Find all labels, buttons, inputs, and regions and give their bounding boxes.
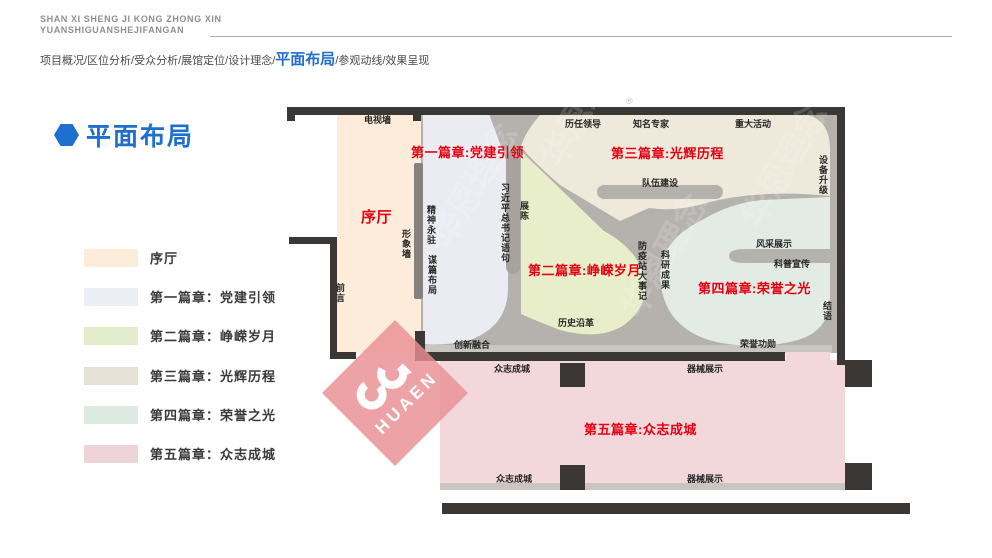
column xyxy=(845,360,872,387)
area-label-planning: 谋篇布局 xyxy=(427,255,437,295)
column xyxy=(560,363,585,387)
area-label-fengcai: 风采展示 xyxy=(756,239,792,249)
area-label-qianyan: 前言 xyxy=(335,283,345,303)
wall-tv-tick xyxy=(413,115,421,121)
wall-left-stub xyxy=(289,237,336,244)
area-label-experts: 知名专家 xyxy=(633,119,669,129)
wall-top-left-stub xyxy=(287,107,295,121)
area-label-equipment: 设备升级 xyxy=(818,155,828,195)
area-label-zhanchen: 展陈 xyxy=(519,201,529,221)
area-label-events: 重大活动 xyxy=(735,119,771,129)
area-label-research: 科研成果 xyxy=(660,250,670,290)
chapter-label-ch5: 第五篇章:众志成城 xyxy=(584,423,697,437)
chapter-label-ch3: 第三篇章:光辉历程 xyxy=(611,147,724,161)
area-label-device-top: 器械展示 xyxy=(687,364,723,374)
wall-bottom xyxy=(442,503,910,514)
chapter-label-xuting: 序厅 xyxy=(361,211,392,225)
area-label-honor: 荣誉功勋 xyxy=(740,339,776,349)
area-label-xi-quote: 习近平总书记语句 xyxy=(500,183,510,263)
area-label-unity-bottom: 众志成城 xyxy=(496,474,532,484)
slide-page: SHAN XI SHENG JI KONG ZHONG XIN YUANSHIG… xyxy=(0,0,992,558)
column xyxy=(560,465,585,490)
chapter-label-ch2: 第二篇章:峥嵘岁月 xyxy=(528,264,641,278)
area-label-team: 队伍建设 xyxy=(642,178,678,188)
area-ch5-notch xyxy=(786,352,830,361)
area-label-history: 历史沿革 xyxy=(558,318,594,328)
chapter-label-ch1: 第一篇章:党建引领 xyxy=(411,146,524,160)
strip-bottom xyxy=(440,483,845,490)
area-label-unity-top: 众志成城 xyxy=(494,364,530,374)
wall-mid-bottom xyxy=(415,352,785,361)
area-label-device-bottom: 器械展示 xyxy=(687,474,723,484)
column xyxy=(845,463,872,490)
area-label-leaders: 历任领导 xyxy=(565,119,601,129)
wall-left-bottom-stub xyxy=(330,352,356,359)
area-label-tv-wall: 电视墙 xyxy=(364,115,391,125)
chapter-label-ch4: 第四篇章:荣誉之光 xyxy=(698,282,811,296)
registered-mark: ® xyxy=(626,96,633,106)
image-wall-bar xyxy=(414,163,423,299)
area-label-image-wall: 形象墙 xyxy=(401,229,411,259)
wall-right xyxy=(837,107,845,365)
area-label-innovation: 创新融合 xyxy=(454,340,490,350)
area-label-spirit: 精神永驻 xyxy=(426,205,436,245)
area-label-kepu: 科普宣传 xyxy=(774,259,810,269)
area-label-jieyu: 结语 xyxy=(822,301,832,321)
